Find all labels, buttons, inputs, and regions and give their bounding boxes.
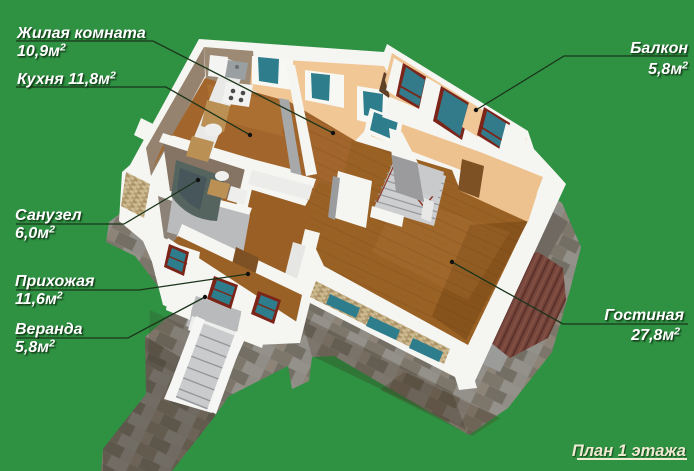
svg-text:Веранда: Веранда — [15, 321, 83, 338]
svg-text:Балкон: Балкон — [630, 40, 688, 57]
svg-text:5,8м2: 5,8м2 — [648, 60, 688, 79]
svg-text:10,9м2: 10,9м2 — [17, 42, 66, 61]
svg-text:Кухня 11,8м2: Кухня 11,8м2 — [17, 70, 116, 89]
svg-text:5,8м2: 5,8м2 — [15, 338, 55, 357]
svg-text:6,0м2: 6,0м2 — [15, 224, 55, 243]
svg-text:Гостиная: Гостиная — [604, 307, 684, 324]
svg-text:11,6м2: 11,6м2 — [15, 290, 63, 309]
svg-text:Жилая комната: Жилая комната — [16, 25, 146, 42]
svg-text:Прихожая: Прихожая — [15, 273, 95, 290]
svg-text:Санузел: Санузел — [15, 207, 82, 224]
svg-text:27,8м2: 27,8м2 — [630, 326, 680, 345]
svg-text:План 1 этажа: План 1 этажа — [572, 442, 686, 460]
